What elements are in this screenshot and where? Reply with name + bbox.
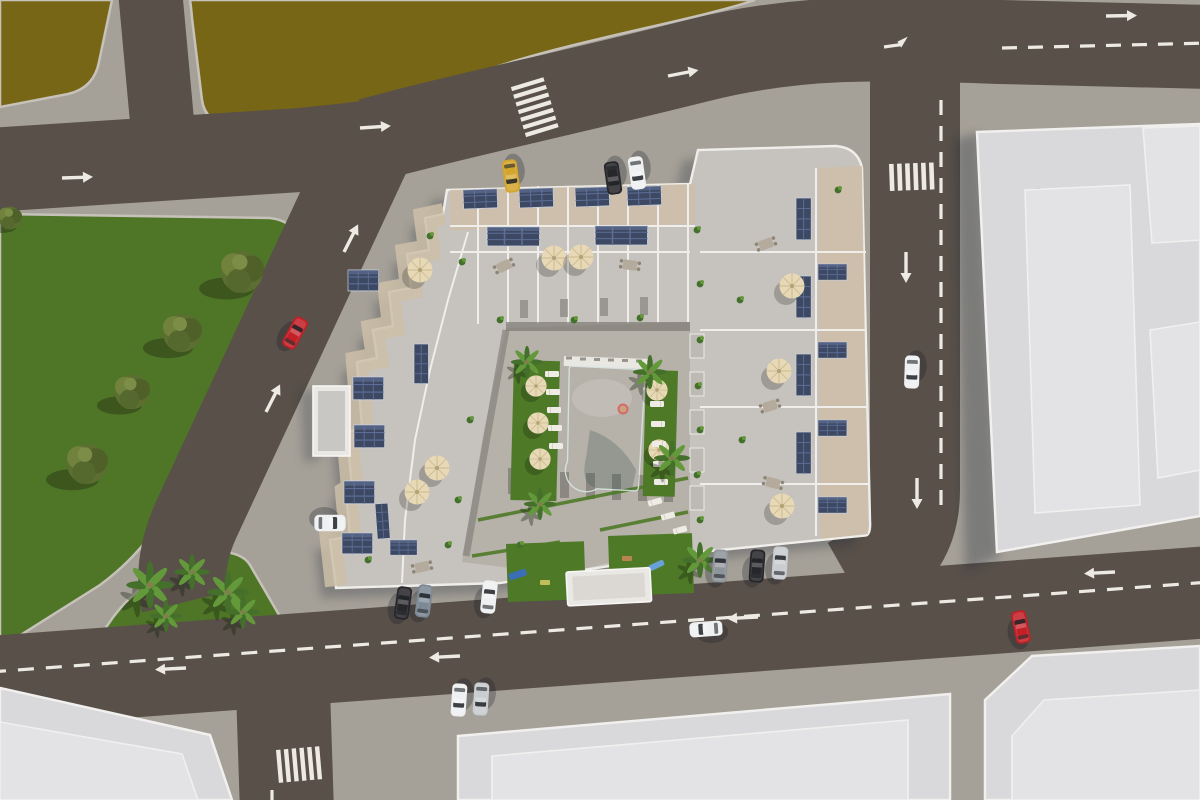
solar-panel-array [354,425,385,448]
solar-panel-array [353,377,384,400]
solar-panel-array [818,497,847,513]
building-northeast-tower [1150,322,1200,478]
sun-lounger [548,425,562,431]
solar-panel-array [818,342,847,358]
aerial-render [0,0,1200,800]
solar-panel-array [487,227,540,246]
scene-canvas [0,0,1200,800]
sun-lounger [549,443,563,449]
solar-panel-array [463,189,498,209]
building-northeast-tower [1143,126,1200,243]
street-north [150,0,163,132]
solar-panel-array [390,540,417,555]
swimmer [619,405,628,414]
building-northeast-tower [1025,185,1140,513]
solar-panel-array [414,344,428,384]
sun-lounger [546,389,560,395]
solar-panel-array [375,503,390,539]
playground-bench [540,580,550,585]
solar-panel-array [575,187,610,207]
solar-panel-array [796,198,811,240]
solar-panel-array [348,270,379,291]
entrance-canopy-roof [318,391,345,451]
solar-panel-array [818,420,847,436]
sun-lounger [650,401,664,407]
solar-panel-array [796,432,811,474]
building-southeast-roof [1012,690,1200,800]
solar-panel-array [342,533,373,554]
sun-lounger [547,407,561,413]
sun-lounger [545,371,559,377]
solar-panel-array [595,226,648,245]
courtyard-north-wall [506,322,690,331]
solar-panel-array [519,188,554,208]
picnic-table [622,556,632,561]
solar-panel-array [627,186,662,206]
solar-panel-array [796,354,811,396]
sun-lounger [651,421,665,427]
pool-house-roof [572,573,645,601]
solar-panel-array [344,481,375,504]
street-south-stub [283,690,287,800]
solar-panel-array [818,264,847,280]
